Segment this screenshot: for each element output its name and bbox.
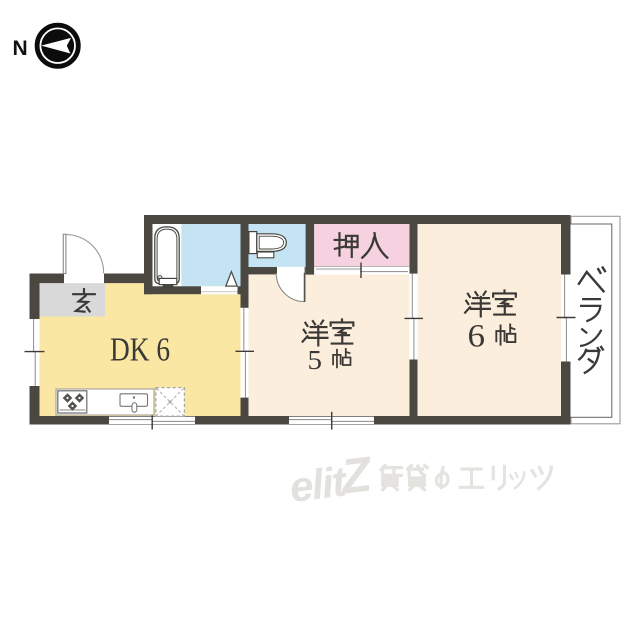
svg-text:6: 6: [468, 319, 486, 355]
svg-text:N: N: [13, 37, 28, 60]
svg-text:DK 6: DK 6: [110, 332, 170, 369]
svg-text:5: 5: [308, 345, 323, 375]
